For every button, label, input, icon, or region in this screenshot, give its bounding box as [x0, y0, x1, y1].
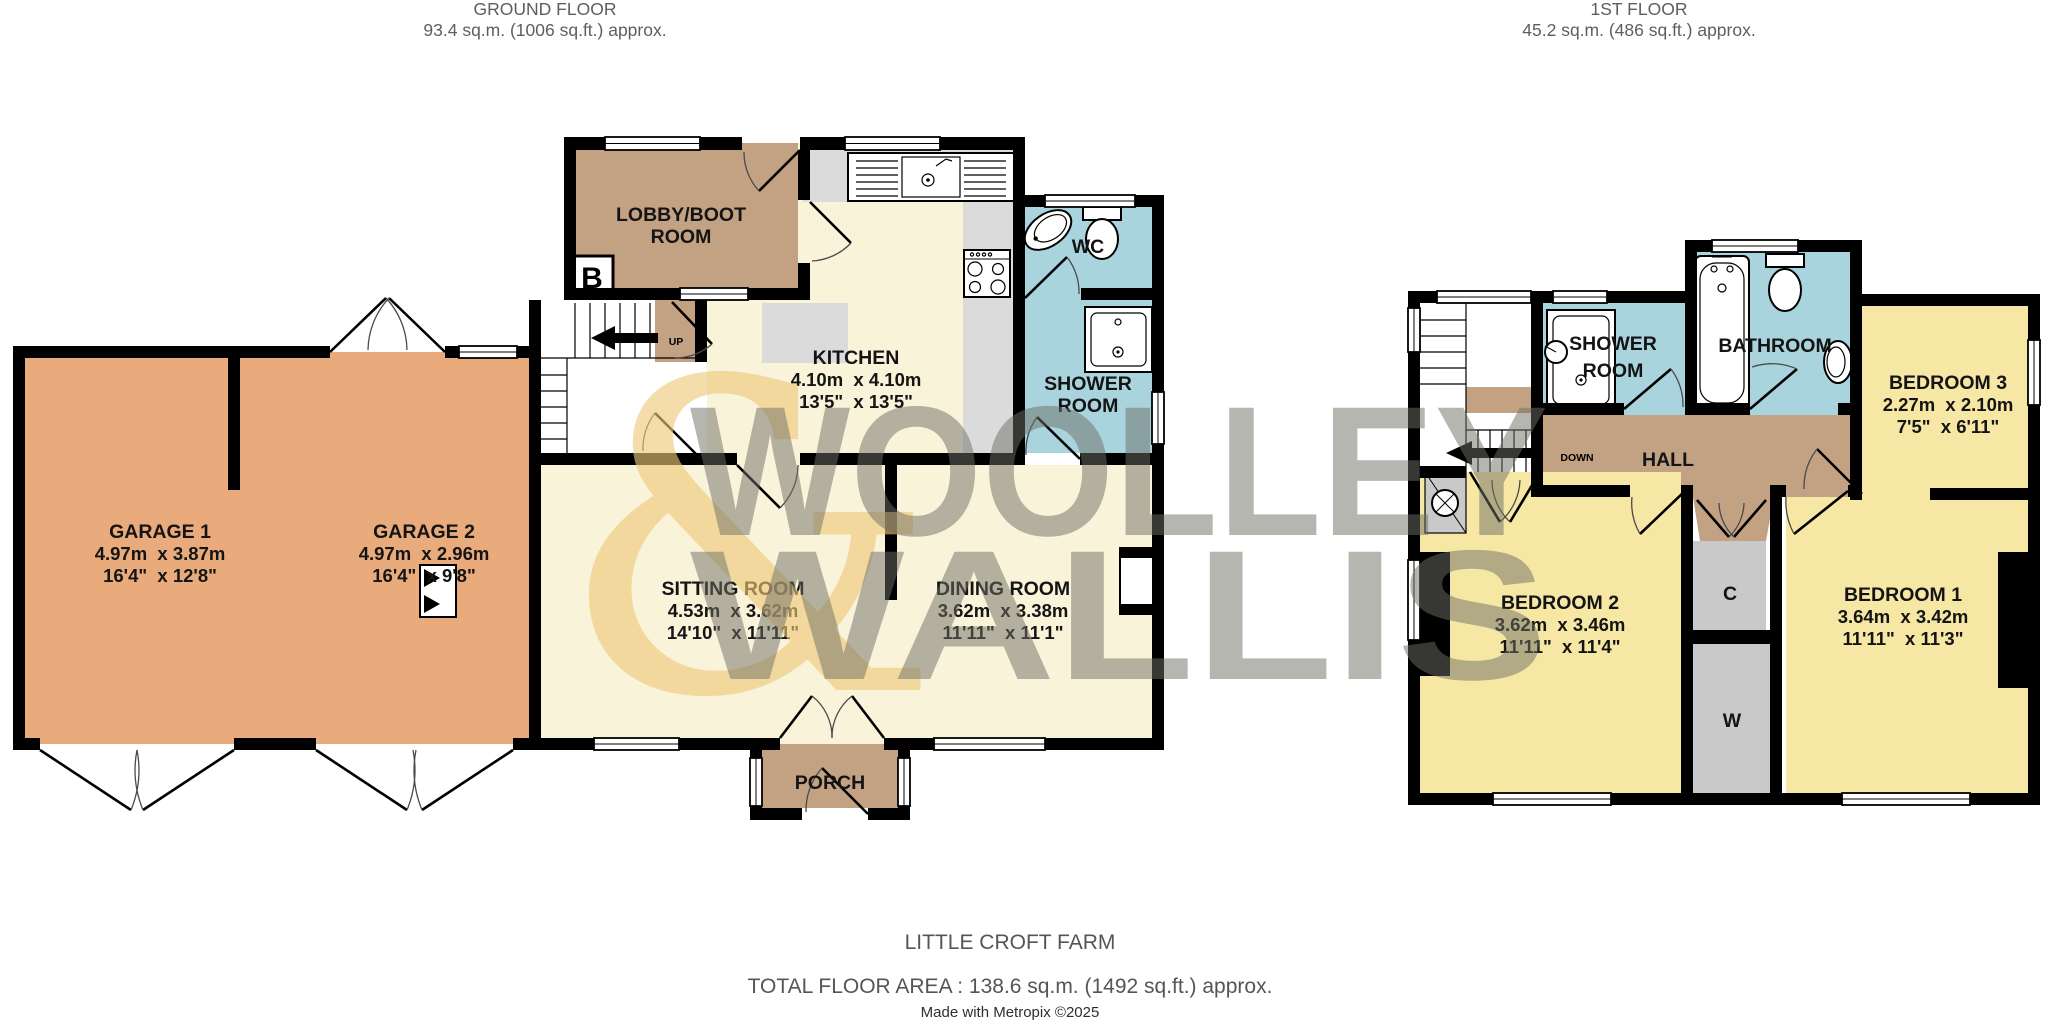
floorplan-svg: GROUND FLOOR 93.4 sq.m. (1006 sq.ft.) ap…: [0, 0, 2048, 1024]
hall-label: HALL: [1642, 449, 1694, 471]
shower-first-label2: ROOM: [1583, 360, 1644, 382]
garage1-dim-imperial: 16'4" x 12'8": [103, 565, 217, 586]
garage2-label: GARAGE 2: [373, 521, 475, 543]
total-floor-area: TOTAL FLOOR AREA : 138.6 sq.m. (1492 sq.…: [748, 975, 1273, 998]
bedroom3-label: BEDROOM 3: [1889, 372, 2007, 394]
shower-tray-ground: [1085, 307, 1152, 372]
first-floor-title: 1ST FLOOR: [1591, 0, 1688, 19]
property-name: LITTLE CROFT FARM: [905, 931, 1116, 954]
stairs-down-label: DOWN: [1560, 452, 1593, 464]
cupboard-label: C: [1723, 583, 1737, 605]
ground-floor-area: 93.4 sq.m. (1006 sq.ft.) approx.: [423, 20, 666, 40]
wardrobe-label: W: [1723, 710, 1742, 732]
garage2-dim-metric: 4.97m x 2.96m: [359, 543, 490, 564]
watermark-word2: WALLIS: [690, 513, 1548, 719]
chimney-bedroom1: [1998, 552, 2028, 688]
wc-label: WC: [1072, 236, 1105, 258]
footer: LITTLE CROFT FARM TOTAL FLOOR AREA : 138…: [748, 931, 1273, 1021]
lobby-label2: ROOM: [651, 226, 712, 248]
floorplan-page: GROUND FLOOR 93.4 sq.m. (1006 sq.ft.) ap…: [0, 0, 2048, 1024]
bedroom3-dim-imperial: 7'5" x 6'11": [1897, 416, 1999, 437]
bedroom1-dim-metric: 3.64m x 3.42m: [1838, 606, 1969, 627]
kitchen-sink: [848, 153, 1014, 201]
first-floor-area: 45.2 sq.m. (486 sq.ft.) approx.: [1522, 20, 1755, 40]
lobby-label: LOBBY/BOOT: [616, 204, 746, 226]
bedroom3-dim-metric: 2.27m x 2.10m: [1883, 394, 2014, 415]
garage2-dim-imperial: 16'4" x 9'8": [372, 565, 476, 586]
ground-floor-title: GROUND FLOOR: [474, 0, 617, 19]
bedroom1-dim-imperial: 11'11" x 11'3": [1842, 628, 1963, 649]
metropix-credit: Made with Metropix ©2025: [921, 1004, 1100, 1021]
bath: [1695, 256, 1749, 410]
shower-first-label: SHOWER: [1569, 333, 1657, 355]
garage1-dim-metric: 4.97m x 3.87m: [95, 543, 226, 564]
garage1-label: GARAGE 1: [109, 521, 211, 543]
cooker-hob: [964, 250, 1010, 297]
bedroom1-label: BEDROOM 1: [1844, 584, 1962, 606]
bathroom-label: BATHROOM: [1718, 335, 1831, 357]
bathroom-toilet: [1766, 254, 1804, 311]
